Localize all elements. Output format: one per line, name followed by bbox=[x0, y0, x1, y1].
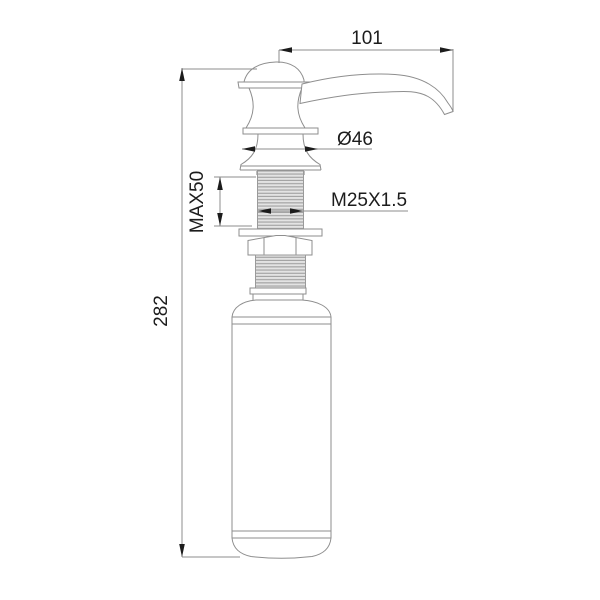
pump-head-side-left bbox=[246, 88, 253, 128]
dispenser-technical-drawing: 101 282 Ø46 MAX50 M25X1.5 bbox=[0, 0, 600, 600]
dim-max50-arrow-top bbox=[217, 177, 223, 190]
dim-max50-arrow-bottom bbox=[217, 213, 223, 226]
bottle-neck-collar bbox=[253, 294, 303, 300]
dim-max50-label: MAX50 bbox=[187, 171, 208, 233]
bottle-bottom bbox=[232, 538, 331, 558]
overall-height-dimension: 282 bbox=[151, 68, 257, 557]
mounting-flange-left bbox=[240, 134, 258, 170]
max-deck-thickness-dimension: MAX50 bbox=[187, 171, 256, 233]
dim-o46-arrow-left bbox=[242, 146, 255, 152]
washer-plate bbox=[239, 229, 322, 236]
threaded-shank-upper bbox=[258, 171, 304, 229]
dim-101-label: 101 bbox=[351, 28, 383, 49]
dim-101-arrow-right bbox=[440, 47, 453, 53]
drawing-canvas: 101 282 Ø46 MAX50 M25X1.5 bbox=[0, 0, 600, 600]
dim-282-arrow-bottom bbox=[179, 544, 185, 557]
dim-m25-label: M25X1.5 bbox=[331, 190, 407, 211]
spout bbox=[300, 74, 453, 114]
dim-282-arrow-top bbox=[179, 68, 185, 81]
pump-head-brim bbox=[238, 82, 312, 88]
dim-282-label: 282 bbox=[151, 295, 172, 327]
pump-head-dome bbox=[244, 62, 304, 82]
mounting-flange-right bbox=[303, 134, 321, 170]
pump-head-rim bbox=[243, 128, 318, 134]
dim-101-arrow-left bbox=[279, 47, 292, 53]
dim-o46-label: Ø46 bbox=[337, 129, 373, 150]
bottle-neck-ring bbox=[250, 288, 306, 294]
hex-nut bbox=[248, 236, 312, 256]
dim-o46-arrow-right bbox=[305, 146, 318, 152]
bottle-shoulder bbox=[232, 300, 331, 317]
threaded-shank-lower bbox=[256, 255, 306, 288]
